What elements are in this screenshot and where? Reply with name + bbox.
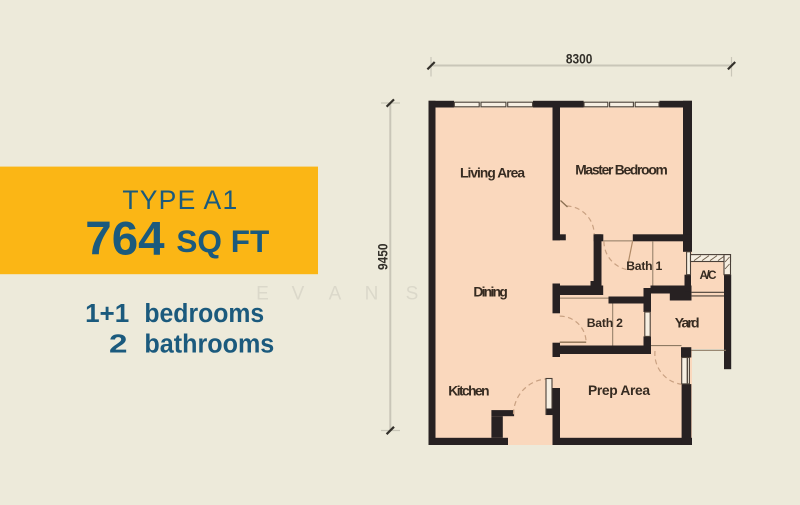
svg-text:Bath 1: Bath 1 xyxy=(626,259,662,273)
svg-text:8300: 8300 xyxy=(566,50,593,66)
svg-text:764: 764 xyxy=(85,212,164,265)
svg-text:S: S xyxy=(406,284,419,305)
svg-text:bathrooms: bathrooms xyxy=(144,330,274,358)
svg-text:A/C: A/C xyxy=(700,268,717,282)
svg-text:Prep Area: Prep Area xyxy=(588,383,650,398)
svg-text:Yard: Yard xyxy=(675,314,700,330)
svg-text:V: V xyxy=(292,284,305,305)
svg-text:SQ FT: SQ FT xyxy=(176,223,269,259)
svg-text:Kitchen: Kitchen xyxy=(448,383,489,398)
svg-text:Dining: Dining xyxy=(473,285,507,300)
svg-text:Bath 2: Bath 2 xyxy=(587,316,623,330)
svg-text:9450: 9450 xyxy=(375,243,391,270)
svg-text:Master Bedroom: Master Bedroom xyxy=(575,162,668,177)
svg-text:A: A xyxy=(329,284,342,305)
svg-text:Living Area: Living Area xyxy=(460,166,525,181)
svg-text:2: 2 xyxy=(109,328,128,358)
svg-text:1+1: 1+1 xyxy=(85,298,129,328)
svg-text:TYPE A1: TYPE A1 xyxy=(122,185,237,215)
svg-text:N: N xyxy=(365,284,379,305)
svg-text:bedrooms: bedrooms xyxy=(144,300,264,328)
